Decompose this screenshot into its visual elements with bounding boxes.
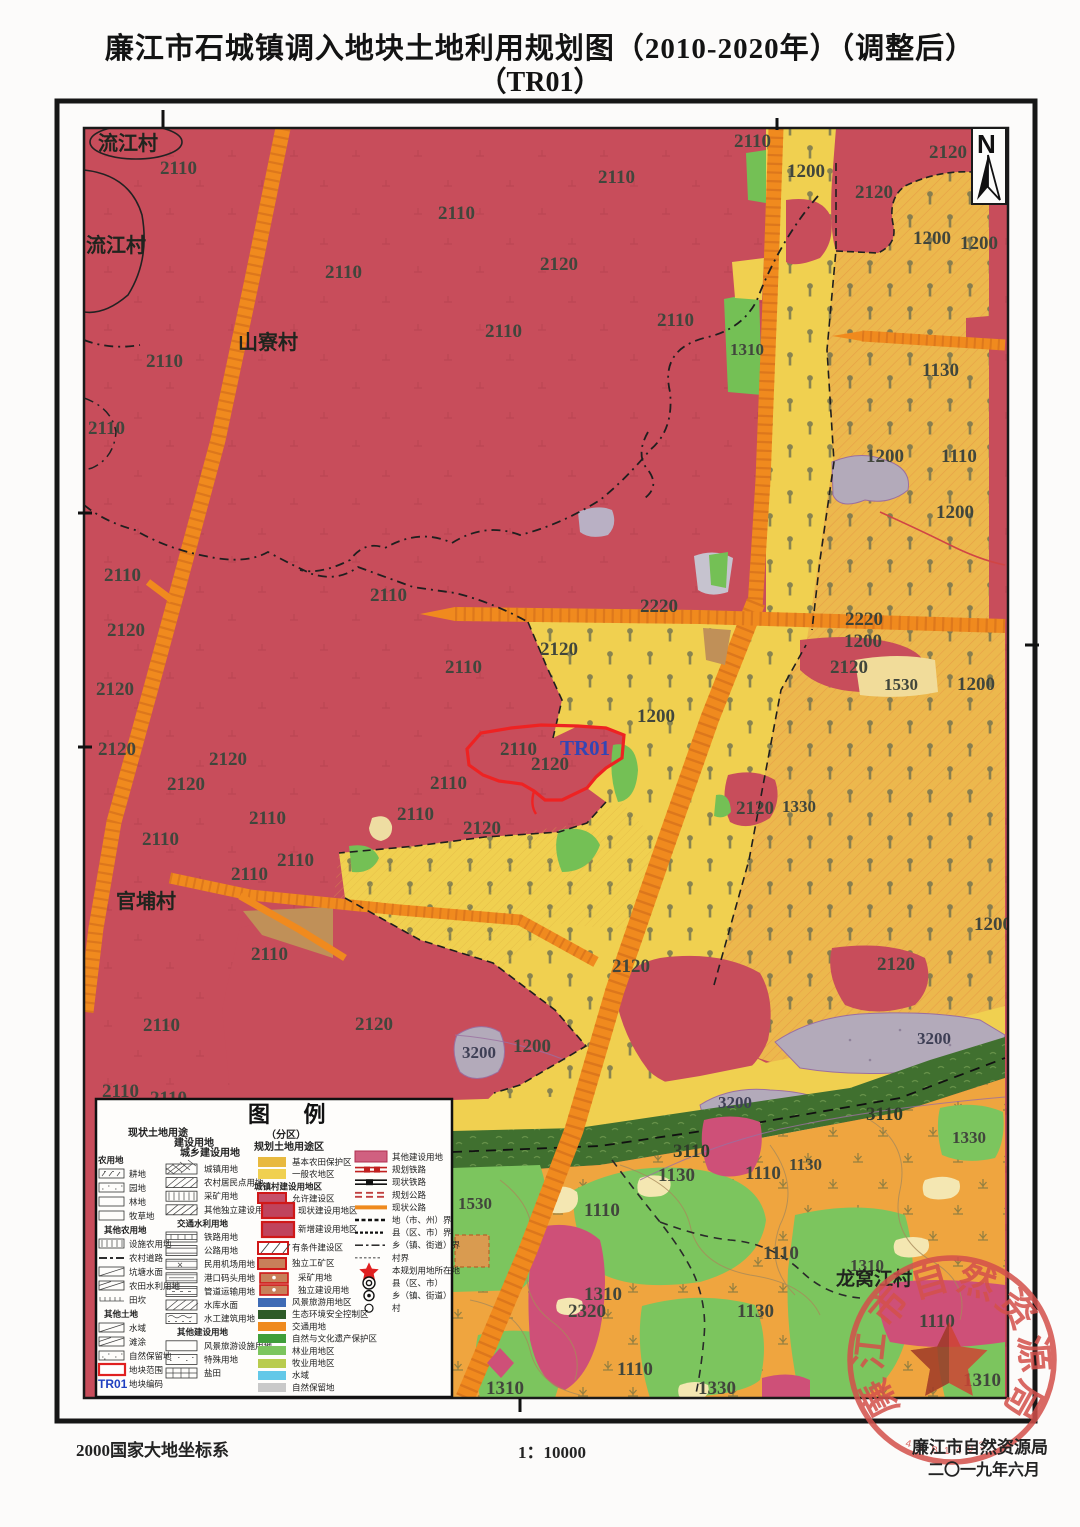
svg-text:1：10000: 1：10000 bbox=[518, 1443, 586, 1462]
svg-text:1130: 1130 bbox=[789, 1155, 822, 1174]
svg-text:2110: 2110 bbox=[438, 203, 475, 224]
svg-text:1330: 1330 bbox=[698, 1378, 736, 1399]
svg-text:3110: 3110 bbox=[866, 1104, 903, 1125]
svg-text:规划土地用途区: 规划土地用途区 bbox=[254, 1140, 324, 1153]
svg-text:城镇用地: 城镇用地 bbox=[204, 1164, 239, 1174]
svg-text:1330: 1330 bbox=[952, 1128, 986, 1147]
svg-text:采矿用地: 采矿用地 bbox=[298, 1273, 333, 1283]
svg-text:2120: 2120 bbox=[929, 142, 967, 163]
svg-text:2120: 2120 bbox=[107, 620, 145, 641]
svg-text:1110: 1110 bbox=[617, 1359, 653, 1380]
svg-text:1530: 1530 bbox=[458, 1194, 492, 1213]
svg-text:3200: 3200 bbox=[462, 1043, 496, 1062]
svg-text:自然保留地: 自然保留地 bbox=[129, 1351, 172, 1361]
svg-text:2110: 2110 bbox=[277, 850, 314, 871]
svg-text:坑塘水面: 坑塘水面 bbox=[129, 1267, 164, 1277]
svg-text:特殊用地: 特殊用地 bbox=[204, 1354, 239, 1364]
svg-text:铁路用地: 铁路用地 bbox=[204, 1232, 239, 1242]
svg-text:水域: 水域 bbox=[292, 1370, 310, 1380]
svg-text:2110: 2110 bbox=[734, 131, 771, 152]
svg-text:1200: 1200 bbox=[960, 233, 998, 254]
svg-text:2110: 2110 bbox=[160, 158, 197, 179]
svg-text:水域: 水域 bbox=[129, 1323, 147, 1333]
svg-text:林地: 林地 bbox=[129, 1197, 147, 1207]
svg-text:公路用地: 公路用地 bbox=[204, 1246, 239, 1256]
svg-text:规划铁路: 规划铁路 bbox=[392, 1165, 427, 1175]
svg-text:民用机场用地: 民用机场用地 bbox=[204, 1259, 256, 1269]
svg-text:城镇村建设用地区: 城镇村建设用地区 bbox=[254, 1181, 323, 1191]
svg-text:2110: 2110 bbox=[500, 739, 537, 760]
svg-text:2110: 2110 bbox=[370, 585, 407, 606]
svg-text:3110: 3110 bbox=[673, 1141, 710, 1162]
svg-text:2120: 2120 bbox=[612, 956, 650, 977]
svg-text:新增建设用地区: 新增建设用地区 bbox=[298, 1224, 358, 1234]
svg-text:1310: 1310 bbox=[730, 340, 764, 359]
svg-text:港口码头用地: 港口码头用地 bbox=[204, 1273, 256, 1283]
svg-text:2220: 2220 bbox=[845, 609, 883, 630]
svg-text:2110: 2110 bbox=[231, 864, 268, 885]
svg-text:牧业用地区: 牧业用地区 bbox=[292, 1358, 335, 1368]
svg-text:2120: 2120 bbox=[96, 679, 134, 700]
svg-text:现状铁路: 现状铁路 bbox=[392, 1177, 427, 1187]
svg-text:廉江市自然资源局: 廉江市自然资源局 bbox=[912, 1437, 1048, 1457]
svg-text:交通水利用地: 交通水利用地 bbox=[177, 1218, 229, 1228]
svg-text:源: 源 bbox=[1011, 1333, 1056, 1373]
svg-text:2120: 2120 bbox=[540, 254, 578, 275]
svg-text:规划公路: 规划公路 bbox=[392, 1190, 427, 1200]
svg-text:2110: 2110 bbox=[142, 829, 179, 850]
svg-text:2120: 2120 bbox=[540, 639, 578, 660]
svg-text:官埔村: 官埔村 bbox=[116, 889, 176, 913]
svg-text:2110: 2110 bbox=[430, 773, 467, 794]
svg-text:本规划用地所在地: 本规划用地所在地 bbox=[392, 1265, 461, 1275]
svg-text:有条件建设区: 有条件建设区 bbox=[292, 1243, 344, 1253]
svg-text:地块范围: 地块范围 bbox=[129, 1365, 163, 1375]
svg-text:2120: 2120 bbox=[355, 1014, 393, 1035]
svg-text:山寮村: 山寮村 bbox=[238, 330, 298, 354]
svg-text:交通用地: 交通用地 bbox=[292, 1321, 327, 1331]
svg-text:自然与文化遗产保护区: 自然与文化遗产保护区 bbox=[292, 1334, 378, 1344]
svg-text:采矿用地: 采矿用地 bbox=[204, 1191, 239, 1201]
svg-text:1200: 1200 bbox=[974, 914, 1012, 935]
svg-text:其他建设用地: 其他建设用地 bbox=[177, 1327, 229, 1337]
svg-text:1110: 1110 bbox=[584, 1200, 620, 1221]
svg-text:1310: 1310 bbox=[486, 1378, 524, 1399]
svg-text:2120: 2120 bbox=[167, 774, 205, 795]
svg-text:滩涂: 滩涂 bbox=[129, 1337, 147, 1347]
svg-text:乡（镇、街道）: 乡（镇、街道） bbox=[392, 1291, 452, 1301]
svg-text:设施农用地: 设施农用地 bbox=[129, 1239, 172, 1249]
svg-text:3200: 3200 bbox=[718, 1093, 752, 1112]
svg-text:管道运输用地: 管道运输用地 bbox=[204, 1286, 256, 1296]
svg-text:耕地: 耕地 bbox=[129, 1169, 147, 1179]
svg-text:2120: 2120 bbox=[98, 739, 136, 760]
svg-text:2110: 2110 bbox=[598, 167, 635, 188]
svg-text:1200: 1200 bbox=[913, 228, 951, 249]
svg-text:流江村: 流江村 bbox=[86, 233, 146, 257]
svg-text:1110: 1110 bbox=[941, 446, 977, 467]
svg-text:乡（镇、街道）界: 乡（镇、街道）界 bbox=[392, 1240, 461, 1250]
svg-text:水库水面: 水库水面 bbox=[204, 1300, 239, 1310]
svg-text:1200: 1200 bbox=[787, 161, 825, 182]
svg-text:1130: 1130 bbox=[658, 1165, 695, 1186]
svg-text:1530: 1530 bbox=[884, 675, 918, 694]
svg-text:2120: 2120 bbox=[463, 818, 501, 839]
svg-text:基本农田保护区: 基本农田保护区 bbox=[292, 1157, 352, 1167]
svg-text:TR01: TR01 bbox=[98, 1377, 128, 1391]
svg-text:图 例: 图 例 bbox=[248, 1102, 340, 1127]
svg-text:1330: 1330 bbox=[782, 797, 816, 816]
svg-text:独立建设用地: 独立建设用地 bbox=[298, 1285, 350, 1295]
svg-text:2120: 2120 bbox=[830, 657, 868, 678]
svg-text:1130: 1130 bbox=[922, 360, 959, 381]
svg-text:其他土地: 其他土地 bbox=[104, 1309, 139, 1319]
svg-text:风景旅游用地区: 风景旅游用地区 bbox=[292, 1297, 352, 1307]
svg-text:自然保留地: 自然保留地 bbox=[292, 1382, 335, 1392]
svg-text:1110: 1110 bbox=[763, 1243, 799, 1264]
svg-text:林业用地区: 林业用地区 bbox=[292, 1346, 335, 1356]
svg-text:2110: 2110 bbox=[88, 418, 125, 439]
svg-text:江: 江 bbox=[848, 1330, 894, 1371]
svg-text:牧草地: 牧草地 bbox=[129, 1211, 155, 1221]
svg-text:2120: 2120 bbox=[736, 798, 774, 819]
svg-text:田坎: 田坎 bbox=[129, 1295, 147, 1305]
svg-text:3200: 3200 bbox=[917, 1029, 951, 1048]
svg-text:盐田: 盐田 bbox=[204, 1368, 221, 1378]
svg-text:地块编码: 地块编码 bbox=[129, 1379, 163, 1389]
svg-text:1200: 1200 bbox=[866, 446, 904, 467]
svg-text:2120: 2120 bbox=[209, 749, 247, 770]
svg-text:1200: 1200 bbox=[957, 674, 995, 695]
svg-text:2110: 2110 bbox=[146, 351, 183, 372]
svg-text:2110: 2110 bbox=[397, 804, 434, 825]
svg-text:1130: 1130 bbox=[737, 1301, 774, 1322]
svg-text:城乡建设用地: 城乡建设用地 bbox=[180, 1146, 240, 1159]
svg-text:农用地: 农用地 bbox=[97, 1155, 124, 1165]
svg-text:TR01: TR01 bbox=[560, 736, 610, 760]
svg-text:2110: 2110 bbox=[445, 657, 482, 678]
svg-text:2120: 2120 bbox=[855, 182, 893, 203]
svg-text:N: N bbox=[977, 129, 996, 159]
svg-text:（分区）: （分区） bbox=[266, 1128, 306, 1141]
svg-text:1110: 1110 bbox=[745, 1163, 781, 1184]
svg-text:1200: 1200 bbox=[844, 631, 882, 652]
svg-text:生态环境安全控制区: 生态环境安全控制区 bbox=[292, 1309, 369, 1319]
svg-text:2110: 2110 bbox=[104, 565, 141, 586]
svg-text:县（区、市）: 县（区、市） bbox=[392, 1278, 443, 1288]
svg-text:2110: 2110 bbox=[485, 321, 522, 342]
svg-text:农村道路: 农村道路 bbox=[129, 1253, 164, 1263]
svg-text:其他农用地: 其他农用地 bbox=[104, 1225, 147, 1235]
svg-text:2110: 2110 bbox=[143, 1015, 180, 1036]
svg-text:园地: 园地 bbox=[129, 1183, 147, 1193]
svg-text:现状公路: 现状公路 bbox=[392, 1202, 427, 1212]
svg-text:村: 村 bbox=[392, 1303, 401, 1313]
svg-text:2110: 2110 bbox=[657, 310, 694, 331]
svg-text:地（市、州）界: 地（市、州）界 bbox=[392, 1215, 452, 1225]
svg-text:2110: 2110 bbox=[325, 262, 362, 283]
svg-text:独立工矿区: 独立工矿区 bbox=[292, 1258, 335, 1268]
svg-text:2120: 2120 bbox=[877, 954, 915, 975]
svg-text:流江村: 流江村 bbox=[98, 131, 158, 155]
svg-text:2220: 2220 bbox=[640, 596, 678, 617]
svg-text:2110: 2110 bbox=[251, 944, 288, 965]
svg-text:其他建设用地: 其他建设用地 bbox=[392, 1152, 444, 1162]
svg-text:1200: 1200 bbox=[513, 1036, 551, 1057]
svg-text:1200: 1200 bbox=[637, 706, 675, 727]
svg-text:1200: 1200 bbox=[936, 502, 974, 523]
svg-text:2000国家大地坐标系: 2000国家大地坐标系 bbox=[76, 1440, 229, 1460]
svg-text:允许建设区: 允许建设区 bbox=[292, 1193, 335, 1203]
svg-text:村界: 村界 bbox=[392, 1253, 410, 1263]
svg-text:一般农地区: 一般农地区 bbox=[292, 1169, 335, 1179]
svg-text:水工建筑用地: 水工建筑用地 bbox=[204, 1314, 256, 1324]
svg-text:2320: 2320 bbox=[568, 1301, 606, 1322]
svg-text:二〇一九年六月: 二〇一九年六月 bbox=[928, 1460, 1040, 1479]
svg-text:县（区、市）界: 县（区、市）界 bbox=[392, 1228, 452, 1238]
svg-text:2110: 2110 bbox=[249, 808, 286, 829]
svg-text:现状建设用地区: 现状建设用地区 bbox=[298, 1206, 358, 1216]
